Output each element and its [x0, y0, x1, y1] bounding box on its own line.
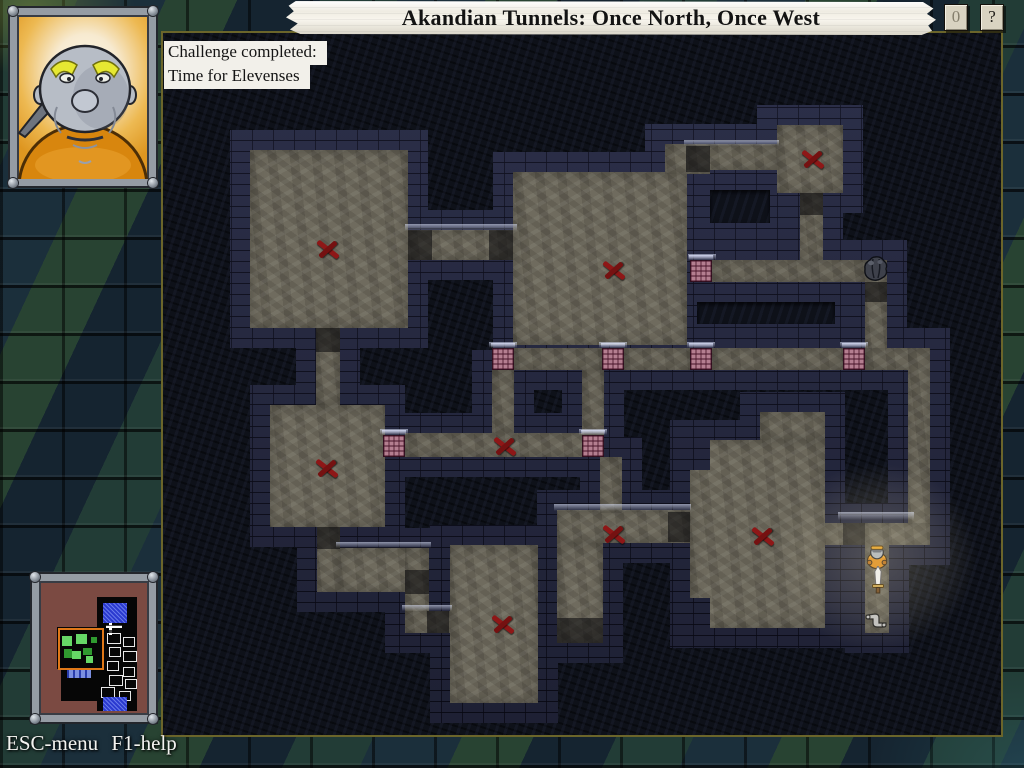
- map-floor: [777, 125, 843, 193]
- door-tile: [690, 260, 712, 282]
- room-title: Akandian Tunnels: Once North, Once West: [402, 5, 820, 30]
- minimap-room: [109, 675, 123, 686]
- game-area[interactable]: [161, 31, 1003, 737]
- character-portrait: [17, 15, 149, 179]
- minimap-corridor: [106, 625, 122, 628]
- minimap-room: [123, 651, 137, 662]
- door-tile: [492, 348, 514, 370]
- wall-glint: [838, 512, 914, 520]
- floor-shadow: [489, 230, 513, 260]
- floor-shadow: [316, 328, 340, 352]
- dungeon-layer: [163, 33, 1001, 735]
- map-pit: [710, 190, 770, 223]
- floor-shadow: [405, 570, 429, 594]
- map-pit: [697, 302, 835, 324]
- wall-glint: [402, 605, 452, 611]
- minimap-special-room: [103, 697, 127, 711]
- minimap-room: [123, 637, 135, 647]
- door-tile: [843, 348, 865, 370]
- floor-shadow: [843, 523, 865, 545]
- map-wall-notch: [690, 440, 710, 470]
- rock-sprite: [862, 255, 890, 283]
- minimap-special-room: [103, 603, 127, 623]
- wall-glint: [684, 140, 779, 146]
- map-floor: [624, 348, 690, 370]
- minimap-room: [107, 661, 119, 671]
- door-tile: [383, 435, 405, 457]
- game-window: Akandian Tunnels: Once North, Once West …: [0, 0, 1024, 768]
- minimap-special-room: [67, 669, 91, 678]
- help-button[interactable]: ?: [980, 4, 1004, 31]
- rivet-icon: [30, 572, 40, 582]
- rivet-icon: [8, 178, 18, 188]
- floor-shadow: [557, 618, 603, 643]
- map-floor: [712, 260, 865, 282]
- map-floor: [270, 405, 385, 527]
- wall-glint: [405, 224, 517, 231]
- minimap-room: [125, 679, 137, 689]
- map-floor: [582, 370, 604, 435]
- floor-shadow: [686, 146, 710, 172]
- rivet-icon: [148, 572, 158, 582]
- map-wall-notch: [690, 598, 710, 628]
- floor-shadow: [668, 512, 690, 542]
- door-tile: [582, 435, 604, 457]
- minimap[interactable]: [32, 574, 156, 722]
- minimap-room: [123, 667, 135, 677]
- rivet-icon: [148, 6, 158, 16]
- map-floor: [712, 348, 843, 370]
- challenge-line2: Time for Elevenses: [164, 65, 310, 89]
- floor-shadow: [865, 282, 887, 302]
- map-floor: [250, 150, 408, 328]
- title-banner: Akandian Tunnels: Once North, Once West: [286, 1, 936, 35]
- sword-icon: [870, 566, 886, 594]
- counter-button[interactable]: 0: [944, 4, 968, 31]
- scroll-icon: [864, 610, 888, 632]
- footer-help-text: ESC-menu F1-help: [6, 731, 177, 756]
- map-floor: [492, 370, 514, 435]
- map-floor: [514, 348, 602, 370]
- challenge-line1: Challenge completed:: [164, 41, 327, 65]
- door-tile: [690, 348, 712, 370]
- rivet-icon: [8, 6, 18, 16]
- minimap-current-room-box: [58, 628, 104, 670]
- portrait-frame: [10, 8, 156, 186]
- rivet-icon: [30, 714, 40, 724]
- rivet-icon: [148, 714, 158, 724]
- rivet-icon: [148, 178, 158, 188]
- map-floor: [513, 172, 687, 345]
- map-floor: [760, 412, 825, 440]
- minimap-room: [109, 647, 121, 657]
- wall-glint: [554, 504, 691, 511]
- floor-shadow: [800, 193, 823, 215]
- wall-glint: [336, 542, 431, 548]
- map-floor: [450, 545, 538, 703]
- floor-shadow: [408, 230, 432, 260]
- door-tile: [602, 348, 624, 370]
- challenge-message: Challenge completed: Time for Elevenses: [164, 41, 327, 89]
- floor-shadow: [427, 611, 449, 633]
- map-floor: [690, 440, 825, 628]
- map-floor: [405, 433, 604, 457]
